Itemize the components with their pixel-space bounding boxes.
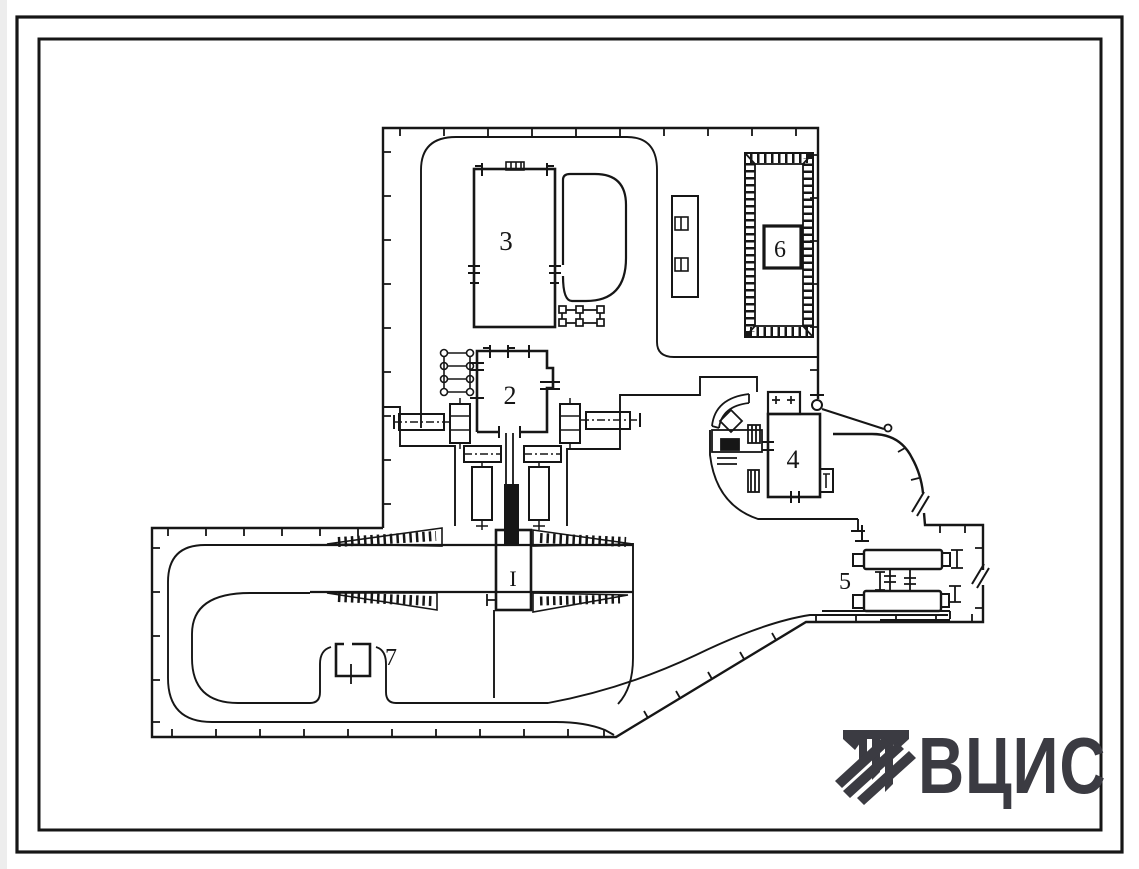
gate-latch xyxy=(885,425,892,432)
vent-grate-1-lines xyxy=(752,425,756,443)
tank-1-cap-left xyxy=(853,554,864,566)
ramp-upper-left-hatch xyxy=(338,536,436,542)
building-4-annex-plus xyxy=(772,396,795,404)
ramp-upper-right-hatch xyxy=(540,538,626,542)
ladder-symbol xyxy=(717,458,737,464)
break-mark-2 xyxy=(972,564,989,588)
gate-pivot xyxy=(812,400,822,410)
hopper-diamond xyxy=(720,410,742,432)
label-building-2: 2 xyxy=(504,381,517,410)
gallery-conveyor-lines xyxy=(506,433,513,484)
ramp-lower-left-hatch xyxy=(338,597,432,601)
window-strip-windows xyxy=(675,217,688,271)
building-7-group xyxy=(336,644,370,684)
equipment-west xyxy=(394,398,470,449)
drawing-sheet: 3 2 6 4 5 7 I ВЦИС xyxy=(0,0,1139,869)
building-4-dock-mark xyxy=(823,474,830,488)
conveyor-strips xyxy=(310,433,633,612)
building-7 xyxy=(336,644,370,676)
road-strip-end xyxy=(618,543,633,704)
logo-emblem-stripes xyxy=(835,737,916,805)
window-strip xyxy=(672,196,698,297)
label-building-1: I xyxy=(509,566,516,591)
vent-grate-2 xyxy=(748,470,759,492)
ramp-lower-left xyxy=(327,593,437,610)
inner-border xyxy=(39,39,1101,830)
boundary-ticks xyxy=(152,128,983,737)
pipe-rack xyxy=(441,350,474,396)
building-3-annex xyxy=(563,174,626,301)
building-7-mark xyxy=(345,664,351,684)
label-building-5: 5 xyxy=(839,569,851,595)
logo-emblem xyxy=(835,730,916,805)
hopper-grate-dark xyxy=(721,439,739,450)
building-4-west-details xyxy=(712,394,762,492)
label-building-7: 7 xyxy=(385,645,397,671)
tank-2-cap-left xyxy=(853,595,864,608)
area-5-group xyxy=(853,550,963,611)
label-building-4: 4 xyxy=(787,445,800,474)
label-building-6: 6 xyxy=(774,237,786,263)
logo-text: ВЦИС xyxy=(918,721,1106,810)
logo: ВЦИС xyxy=(835,721,1106,810)
site-boundary xyxy=(152,128,989,737)
tank-2 xyxy=(864,591,941,611)
road-inner-loop xyxy=(192,593,948,703)
building-3-entrance-marks xyxy=(468,163,561,283)
label-building-3: 3 xyxy=(499,226,513,256)
road-outer-loop xyxy=(168,545,614,735)
vent-grate-2-lines xyxy=(751,470,755,492)
embankment-ramps xyxy=(327,528,633,612)
building-4-annex xyxy=(768,392,800,414)
gallery-dark-span xyxy=(504,484,519,544)
tank-1 xyxy=(864,550,942,569)
equipment-east xyxy=(560,398,640,449)
scan-edge-artifact xyxy=(0,0,7,869)
building-3 xyxy=(474,169,555,327)
boundary-right-curve xyxy=(833,434,923,493)
site-plan-drawing: 3 2 6 4 5 7 I ВЦИС xyxy=(0,0,1139,869)
footing-grid xyxy=(559,306,604,326)
gate-leaf xyxy=(822,409,884,429)
break-mark-1 xyxy=(912,492,929,516)
vent-grate-1 xyxy=(748,425,760,443)
